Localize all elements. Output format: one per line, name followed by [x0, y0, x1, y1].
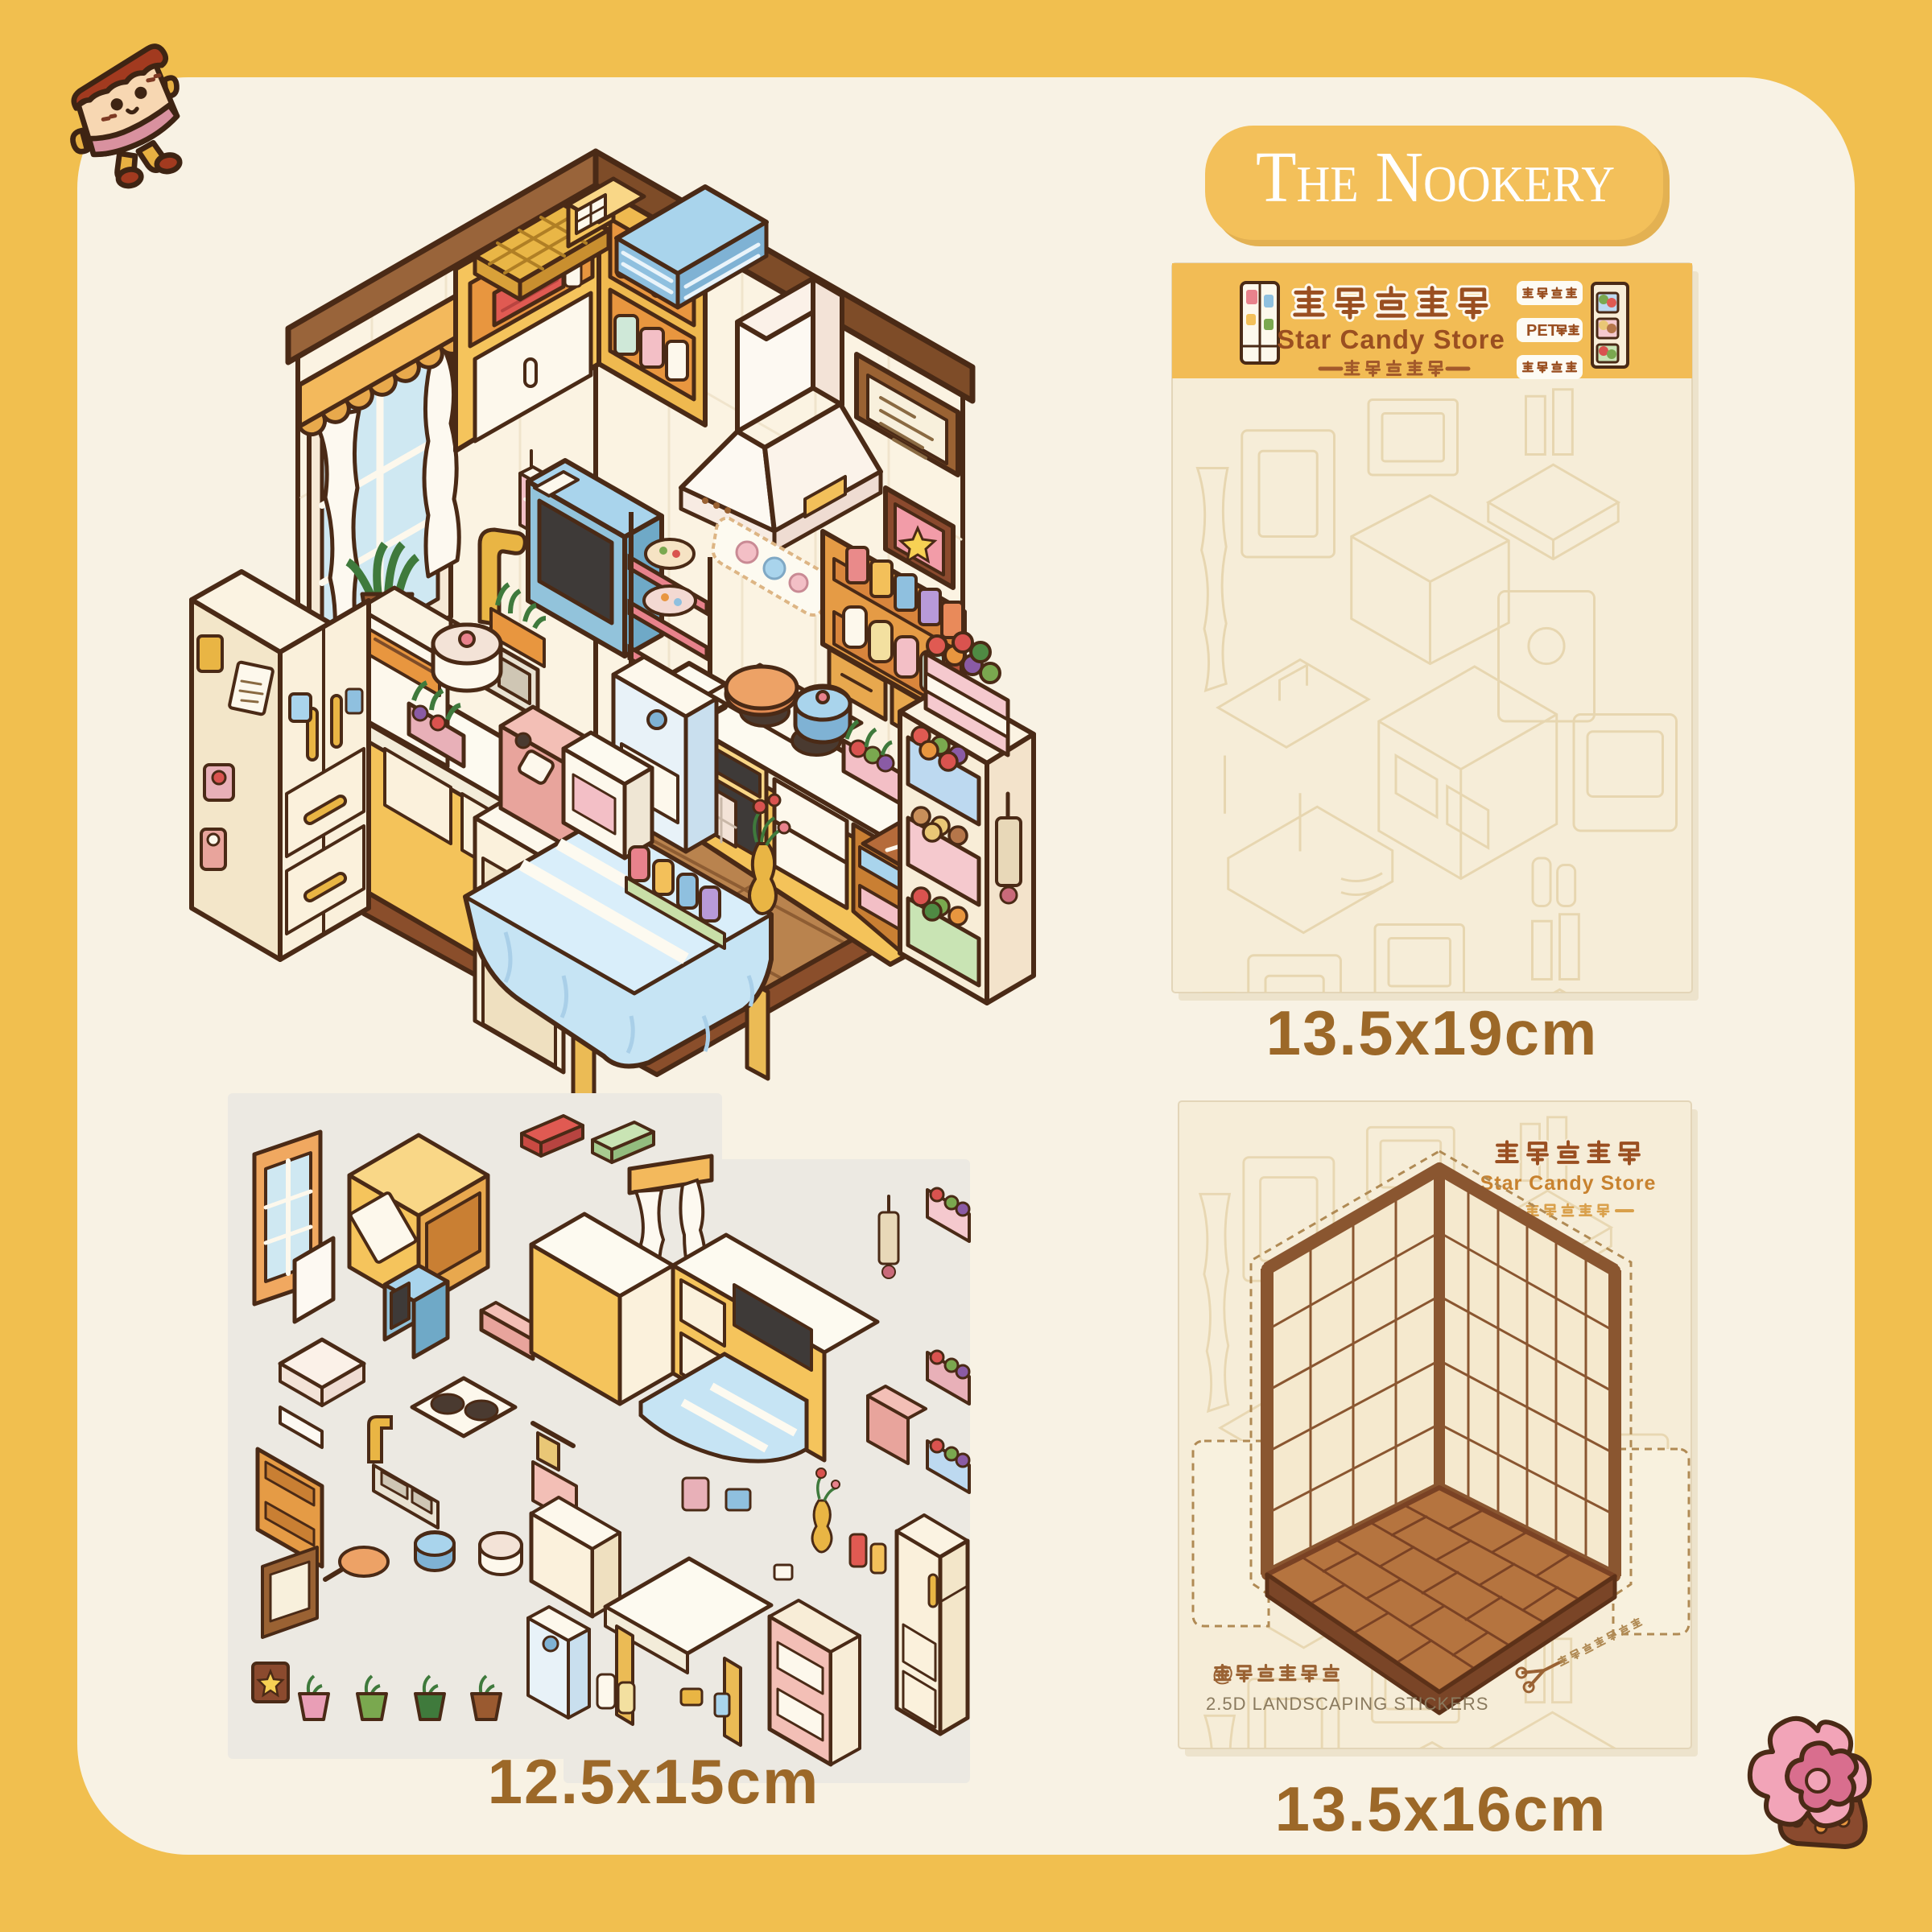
svg-text:2.5D LANDSCAPING STICKERS: 2.5D LANDSCAPING STICKERS	[1206, 1694, 1488, 1714]
svg-text:13.5x16cm: 13.5x16cm	[1275, 1773, 1608, 1844]
svg-text:Star Candy Store: Star Candy Store	[1277, 324, 1505, 354]
svg-text:PET: PET	[1526, 322, 1558, 340]
svg-text:12.5x15cm: 12.5x15cm	[488, 1746, 820, 1817]
svg-text:13.5x19cm: 13.5x19cm	[1266, 997, 1599, 1068]
